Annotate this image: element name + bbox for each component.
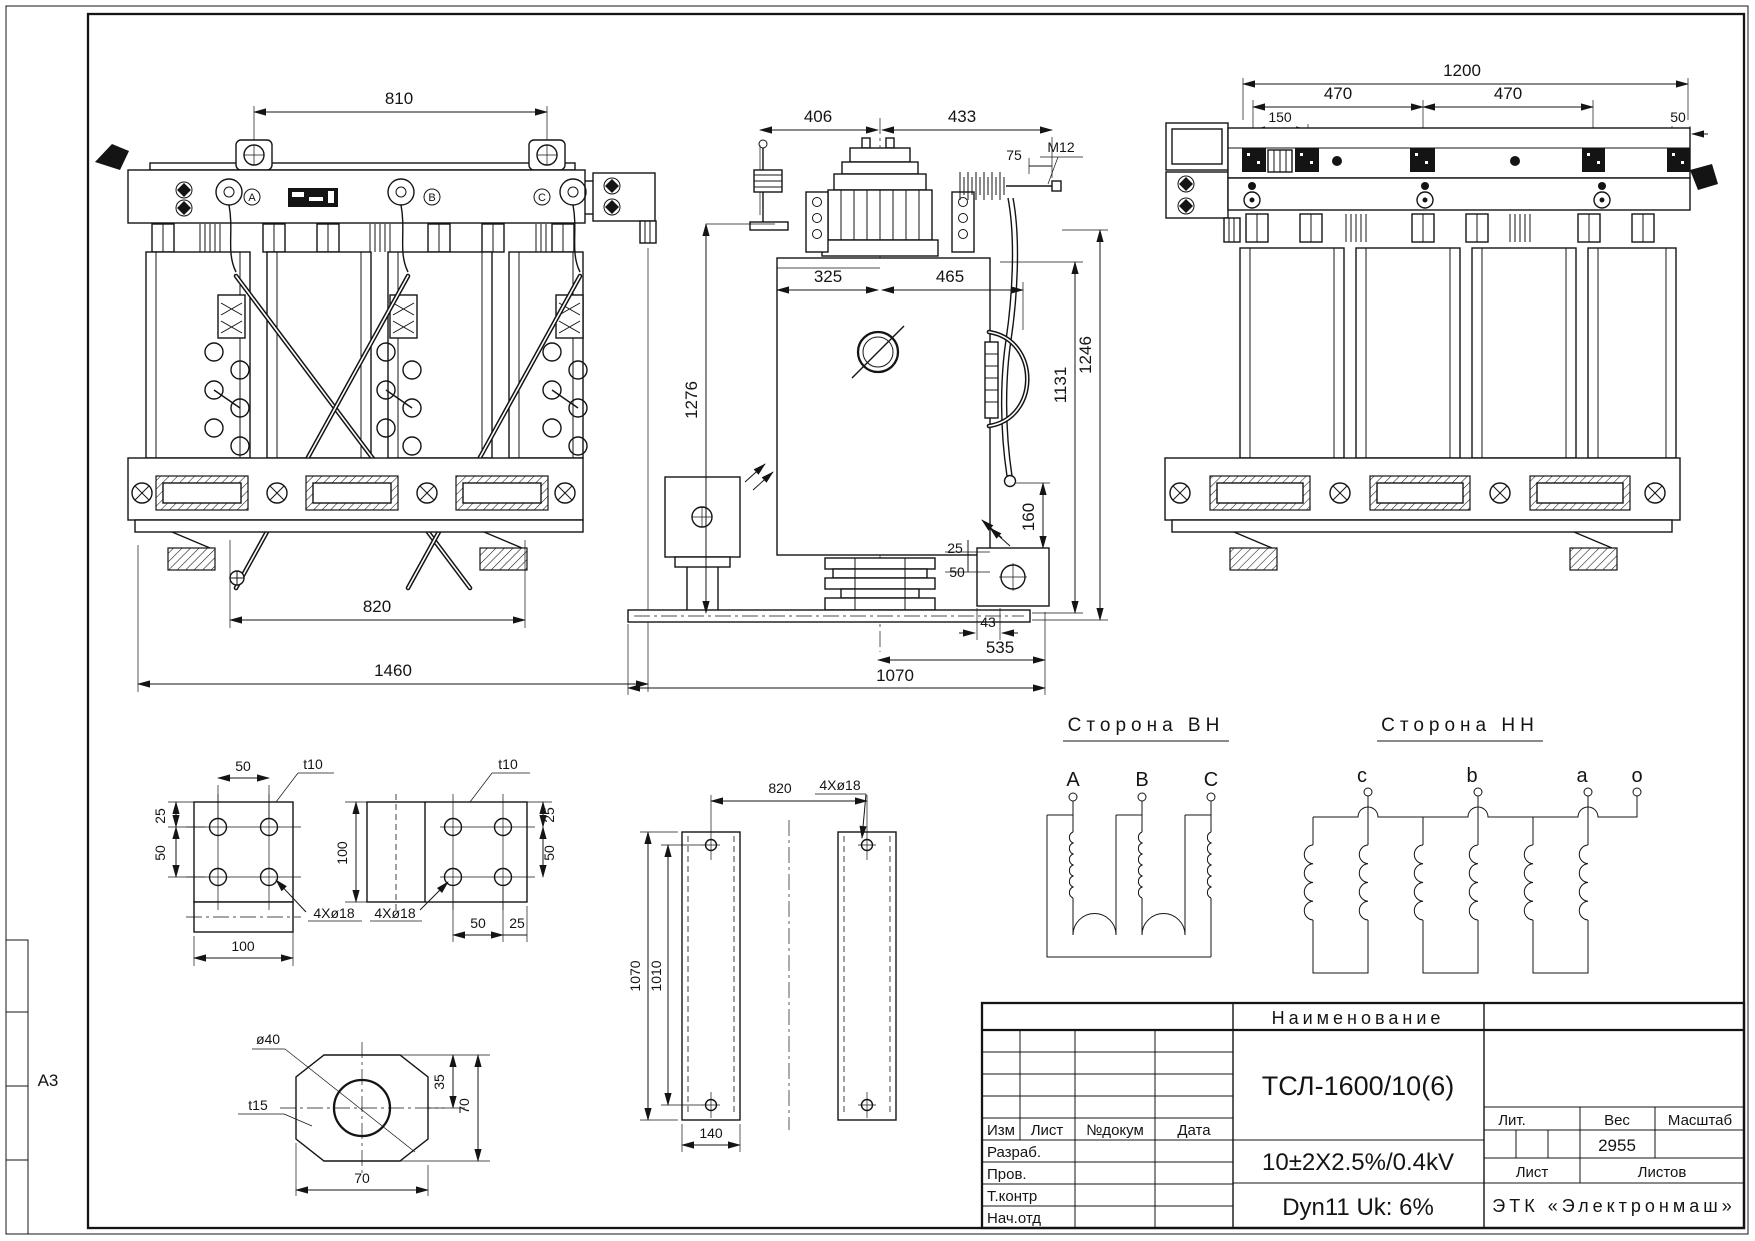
dim-label: 25: [509, 915, 525, 931]
vector-group: Dyn11 Uk: 6%: [1282, 1194, 1434, 1221]
dim-label: 535: [986, 638, 1014, 657]
dim-label: 25: [541, 807, 557, 823]
dim-label: 1460: [374, 661, 412, 680]
weight-label: Вес: [1604, 1112, 1630, 1129]
detail-plate-2: t10 100 25 50 50 25 4Xø18: [334, 756, 557, 942]
sheets-label: Листов: [1638, 1164, 1687, 1181]
title-block: Изм Лист №докум Дата Разраб. Пров. Т.кон…: [982, 1003, 1744, 1228]
phase-label-b: B: [428, 192, 435, 204]
dim-label: 70: [354, 1170, 370, 1186]
thickness-callout: t10: [303, 756, 323, 772]
side-view: 406 433 75 M12 325 465: [628, 107, 1108, 695]
dim-label: 1131: [1051, 367, 1070, 404]
sign-tkontr: Т.контр: [987, 1188, 1037, 1205]
dim-label: 43: [980, 614, 996, 630]
dim-label: 433: [948, 107, 976, 126]
dim-label: 50: [1670, 109, 1686, 125]
sign-nachotd: Нач.отд: [987, 1210, 1041, 1227]
thread-callout: M12: [1047, 139, 1074, 155]
hv-winding-schematic: Сторона ВН A B C: [1047, 715, 1229, 957]
thickness-callout: t15: [248, 1097, 268, 1113]
dim-label: 1070: [627, 960, 643, 991]
name-header: Наименование: [1272, 1008, 1445, 1028]
front-view: 810 A B C: [95, 89, 656, 692]
rev-col-list: Лист: [1031, 1122, 1064, 1139]
hv-terminal-a: A: [1066, 769, 1080, 791]
rear-view: 1200 470 470 150 50: [1165, 61, 1718, 570]
dim-label: 406: [804, 107, 832, 126]
dim-label: 25: [947, 540, 963, 556]
company-name: ЭТК «Электронмаш»: [1492, 1196, 1735, 1216]
top-clamp-row: [1246, 214, 1654, 242]
dim-label: 100: [334, 841, 350, 865]
hv-terminal-c: C: [1204, 769, 1218, 791]
rev-col-izm: Изм: [987, 1122, 1015, 1139]
dim-label: 810: [385, 89, 413, 108]
detail-base-rails: 820 4Xø18 1070 1010 140: [627, 777, 896, 1152]
dim-label: 325: [814, 267, 842, 286]
coil-columns: [1240, 248, 1676, 458]
lv-bushing-stack: [825, 558, 935, 610]
lv-title: Сторона НН: [1381, 715, 1539, 736]
sign-razrab: Разраб.: [987, 1144, 1041, 1161]
hv-terminal-b: B: [1135, 769, 1148, 791]
dim-label: 50: [949, 564, 965, 580]
dim-label: 1276: [682, 381, 701, 419]
dim-label: 75: [1006, 147, 1022, 163]
sheet-format-label: A3: [38, 1071, 59, 1090]
lv-terminal-c: c: [1357, 765, 1367, 787]
lv-terminal-b: b: [1466, 765, 1477, 787]
drawing-sheet: A3 810 A B C: [0, 0, 1755, 1241]
lv-winding-schematic: Сторона НН c b a o: [1304, 715, 1642, 973]
dim-label: 160: [1019, 503, 1038, 531]
base-channel: [1165, 458, 1680, 570]
dim-label: 1070: [876, 666, 914, 685]
detail-foot-pad: ø40 t15 35 70 70: [238, 1031, 490, 1196]
dim-label: 465: [936, 267, 964, 286]
lv-terminal-a: a: [1576, 765, 1588, 787]
weight-value: 2955: [1598, 1136, 1636, 1155]
sheet-label: Лист: [1516, 1164, 1549, 1181]
beam-end-hook: [1690, 164, 1718, 190]
phase-label-a: A: [248, 192, 256, 204]
base-channel: [128, 458, 583, 585]
dim-label: 50: [152, 845, 168, 861]
dim-label: 140: [699, 1125, 723, 1141]
scale-label: Масштаб: [1668, 1112, 1732, 1129]
top-clamp-row: [152, 224, 574, 252]
dim-label: 470: [1494, 84, 1522, 103]
dim-label: 50: [541, 845, 557, 861]
beam-end-hook: [95, 144, 129, 170]
hole-callout: 4Xø18: [819, 777, 860, 793]
dim-label: 35: [431, 1074, 447, 1090]
drawing-canvas: A3 810 A B C: [0, 0, 1755, 1241]
dim-label: 50: [470, 915, 486, 931]
hole-callout: 4Xø18: [313, 905, 354, 921]
lv-terminal-o: o: [1631, 765, 1642, 787]
rev-col-data: Дата: [1177, 1122, 1211, 1139]
dim-label: 1246: [1076, 336, 1095, 374]
hv-terminal-box: [585, 173, 656, 243]
dim-label: 70: [456, 1098, 472, 1114]
hole-callout: 4Xø18: [374, 905, 415, 921]
dim-label: 820: [768, 780, 792, 796]
rev-col-dokum: №докум: [1086, 1122, 1144, 1139]
voltage-regulation: 10±2X2.5%/0.4kV: [1262, 1149, 1454, 1176]
sign-prov: Пров.: [987, 1166, 1027, 1183]
dim-label: 1200: [1443, 61, 1481, 80]
dim-label: 25: [152, 808, 168, 824]
dim-label: 150: [1268, 109, 1292, 125]
dim-label: 100: [231, 938, 255, 954]
dim-label: 820: [363, 597, 391, 616]
dim-label: 470: [1324, 84, 1352, 103]
dim-label: 50: [235, 758, 251, 774]
dim-label: 1010: [648, 960, 664, 991]
detail-plate-1: 50 t10 25 50 4Xø18 100: [152, 756, 362, 966]
phase-label-c: C: [538, 192, 546, 204]
thickness-callout: t10: [498, 756, 518, 772]
model-designation: ТСЛ-1600/10(6): [1262, 1071, 1454, 1101]
hv-title: Сторона ВН: [1068, 715, 1225, 736]
dia-callout: ø40: [256, 1031, 280, 1047]
lit-label: Лит.: [1498, 1112, 1526, 1129]
